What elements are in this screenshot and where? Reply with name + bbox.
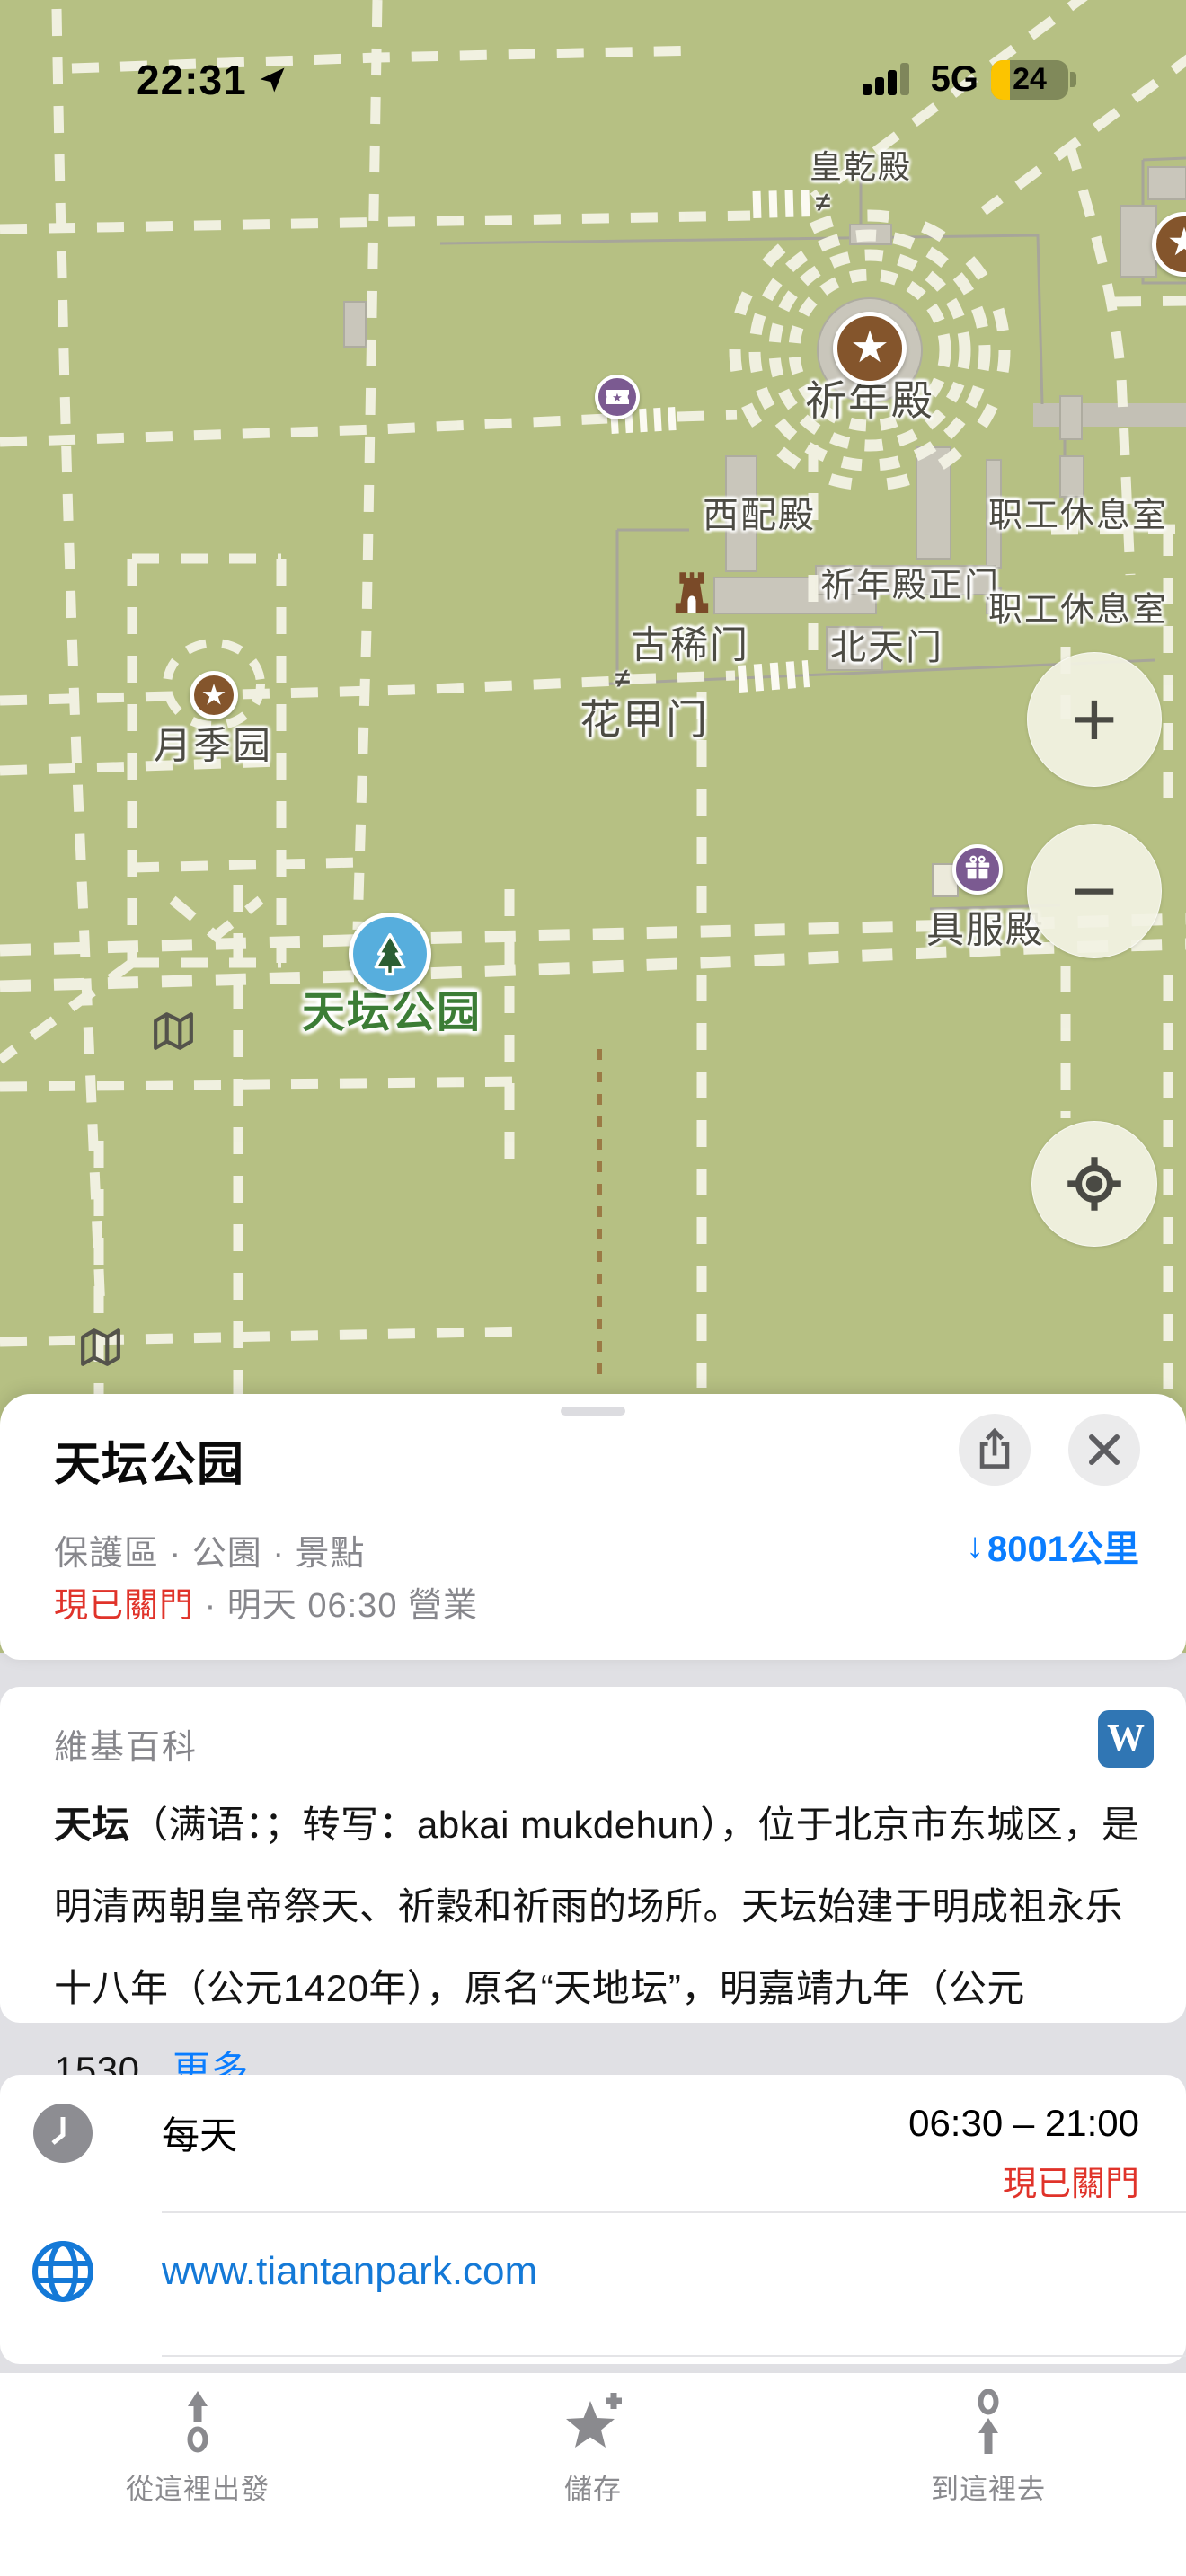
bottom-toolbar: 從這裡出發 儲存 到這裡去 — [0, 2373, 1186, 2576]
map-label-poi[interactable]: 月季园 — [154, 716, 272, 771]
down-arrow-icon: ↓ — [966, 1526, 984, 1566]
gift-poi-marker[interactable] — [952, 844, 1003, 895]
distance-badge[interactable]: ↓ 8001公里 — [966, 1520, 1139, 1572]
route-from-icon — [178, 2389, 217, 2457]
hours-time-range: 06:30 – 21:00 — [908, 2102, 1139, 2145]
place-category: 保護區 · 公園 · 景點 — [54, 1525, 366, 1575]
svg-text:★: ★ — [612, 391, 623, 404]
closed-now-label: 現已關門 — [54, 1587, 194, 1625]
tree-poi-marker[interactable] — [349, 913, 431, 995]
drag-handle[interactable] — [561, 1407, 625, 1416]
row-divider — [162, 2355, 1186, 2357]
zoom-out-button[interactable]: − — [1027, 824, 1162, 958]
share-button[interactable] — [959, 1414, 1031, 1486]
status-bar: 22:31 5G 24 — [0, 56, 1186, 106]
battery-cap — [1070, 72, 1076, 87]
tower-poi-marker[interactable] — [671, 570, 712, 615]
map-label-poi[interactable]: 古稀门 — [631, 615, 749, 670]
wikipedia-card: 維基百科 W 天坛（满语：；转写：abkai mukdehun），位于北京市东城… — [0, 1687, 1186, 2023]
route-to-icon — [969, 2389, 1008, 2457]
kiosk-poi-marker[interactable] — [79, 1328, 122, 1367]
maps-app-screen: 皇乾殿祈年殿西配殿职工休息室祈年殿正门职工休息室古稀门北天门花甲门月季园具服殿天… — [0, 0, 1186, 2576]
globe-icon — [30, 2238, 96, 2309]
minus-icon: − — [1071, 851, 1117, 931]
battery-indicator: 24 — [991, 60, 1076, 100]
map-overlay: 皇乾殿祈年殿西配殿职工休息室祈年殿正门职工休息室古稀门北天门花甲门月季园具服殿天… — [0, 0, 1186, 1437]
place-card-header: 天坛公园 保護區 · 公園 · 景點 ↓ 8001公里 現已關門 · 明天 06… — [0, 1394, 1186, 1660]
map-label-poi[interactable]: 祈年殿正门 — [820, 558, 1000, 607]
gate-poi-marker[interactable]: ≠ — [615, 664, 630, 694]
distance-value: 8001公里 — [987, 1520, 1139, 1572]
plus-icon: + — [1071, 680, 1117, 759]
kiosk-poi-marker[interactable] — [152, 1011, 195, 1051]
map-label-poi[interactable]: 具服殿 — [926, 900, 1045, 955]
map-label-poi[interactable]: 西配殿 — [703, 486, 816, 538]
star-poi-marker[interactable]: ★ — [833, 312, 907, 385]
locate-me-button[interactable] — [1031, 1121, 1157, 1247]
open-status-line: 現已關門 · 明天 06:30 營業 — [54, 1577, 478, 1627]
cellular-signal-icon — [863, 62, 918, 98]
wikipedia-icon[interactable]: W — [1098, 1710, 1154, 1768]
clock-icon — [33, 2104, 93, 2167]
row-divider — [162, 2211, 1186, 2213]
network-type-label: 5G — [931, 59, 978, 100]
clock-time: 22:31 — [137, 56, 247, 104]
map-label-poi[interactable]: 职工休息室 — [988, 582, 1168, 631]
hours-days-label: 每天 — [162, 2105, 237, 2160]
hours-closed-label: 現已關門 — [1003, 2156, 1139, 2205]
battery-percent-label: 24 — [991, 60, 1068, 100]
directions-from-here-button[interactable]: 從這裡出發 — [0, 2373, 395, 2576]
wikipedia-extract: 天坛（满语：；转写：abkai mukdehun），位于北京市东城区，是明清两朝… — [54, 1784, 1143, 2111]
map-label-poi[interactable]: 职工休息室 — [988, 488, 1168, 537]
map-label-poi[interactable]: 皇乾殿 — [810, 141, 912, 188]
opens-tomorrow-label: 明天 06:30 營業 — [227, 1587, 478, 1625]
location-services-icon — [256, 64, 288, 96]
place-title: 天坛公园 — [54, 1426, 244, 1494]
zoom-in-button[interactable]: + — [1027, 652, 1162, 787]
star-poi-marker[interactable]: ★ — [1152, 212, 1186, 277]
ticket-poi-marker[interactable]: ★ — [595, 375, 640, 419]
star-poi-marker[interactable]: ★ — [190, 671, 238, 719]
details-card: 每天 06:30 – 21:00 現已關門 www.tiantanpark.co… — [0, 2075, 1186, 2364]
gate-poi-marker[interactable]: ≠ — [816, 188, 830, 218]
wikipedia-header: 維基百科 — [54, 1719, 198, 1769]
close-button[interactable] — [1068, 1414, 1140, 1486]
map-label-poi[interactable]: 北天门 — [830, 618, 943, 670]
share-icon — [971, 1425, 1018, 1474]
save-star-icon — [560, 2389, 626, 2457]
website-link[interactable]: www.tiantanpark.com — [162, 2249, 537, 2294]
map-canvas[interactable]: 皇乾殿祈年殿西配殿职工休息室祈年殿正门职工休息室古稀门北天门花甲门月季园具服殿天… — [0, 0, 1186, 1437]
save-button[interactable]: 儲存 — [395, 2373, 791, 2576]
map-label-poi[interactable]: 花甲门 — [580, 687, 709, 746]
directions-to-here-button[interactable]: 到這裡去 — [791, 2373, 1186, 2576]
wiki-lead: 天坛 — [54, 1804, 130, 1846]
close-icon — [1086, 1432, 1122, 1468]
crosshair-icon — [1059, 1149, 1129, 1219]
